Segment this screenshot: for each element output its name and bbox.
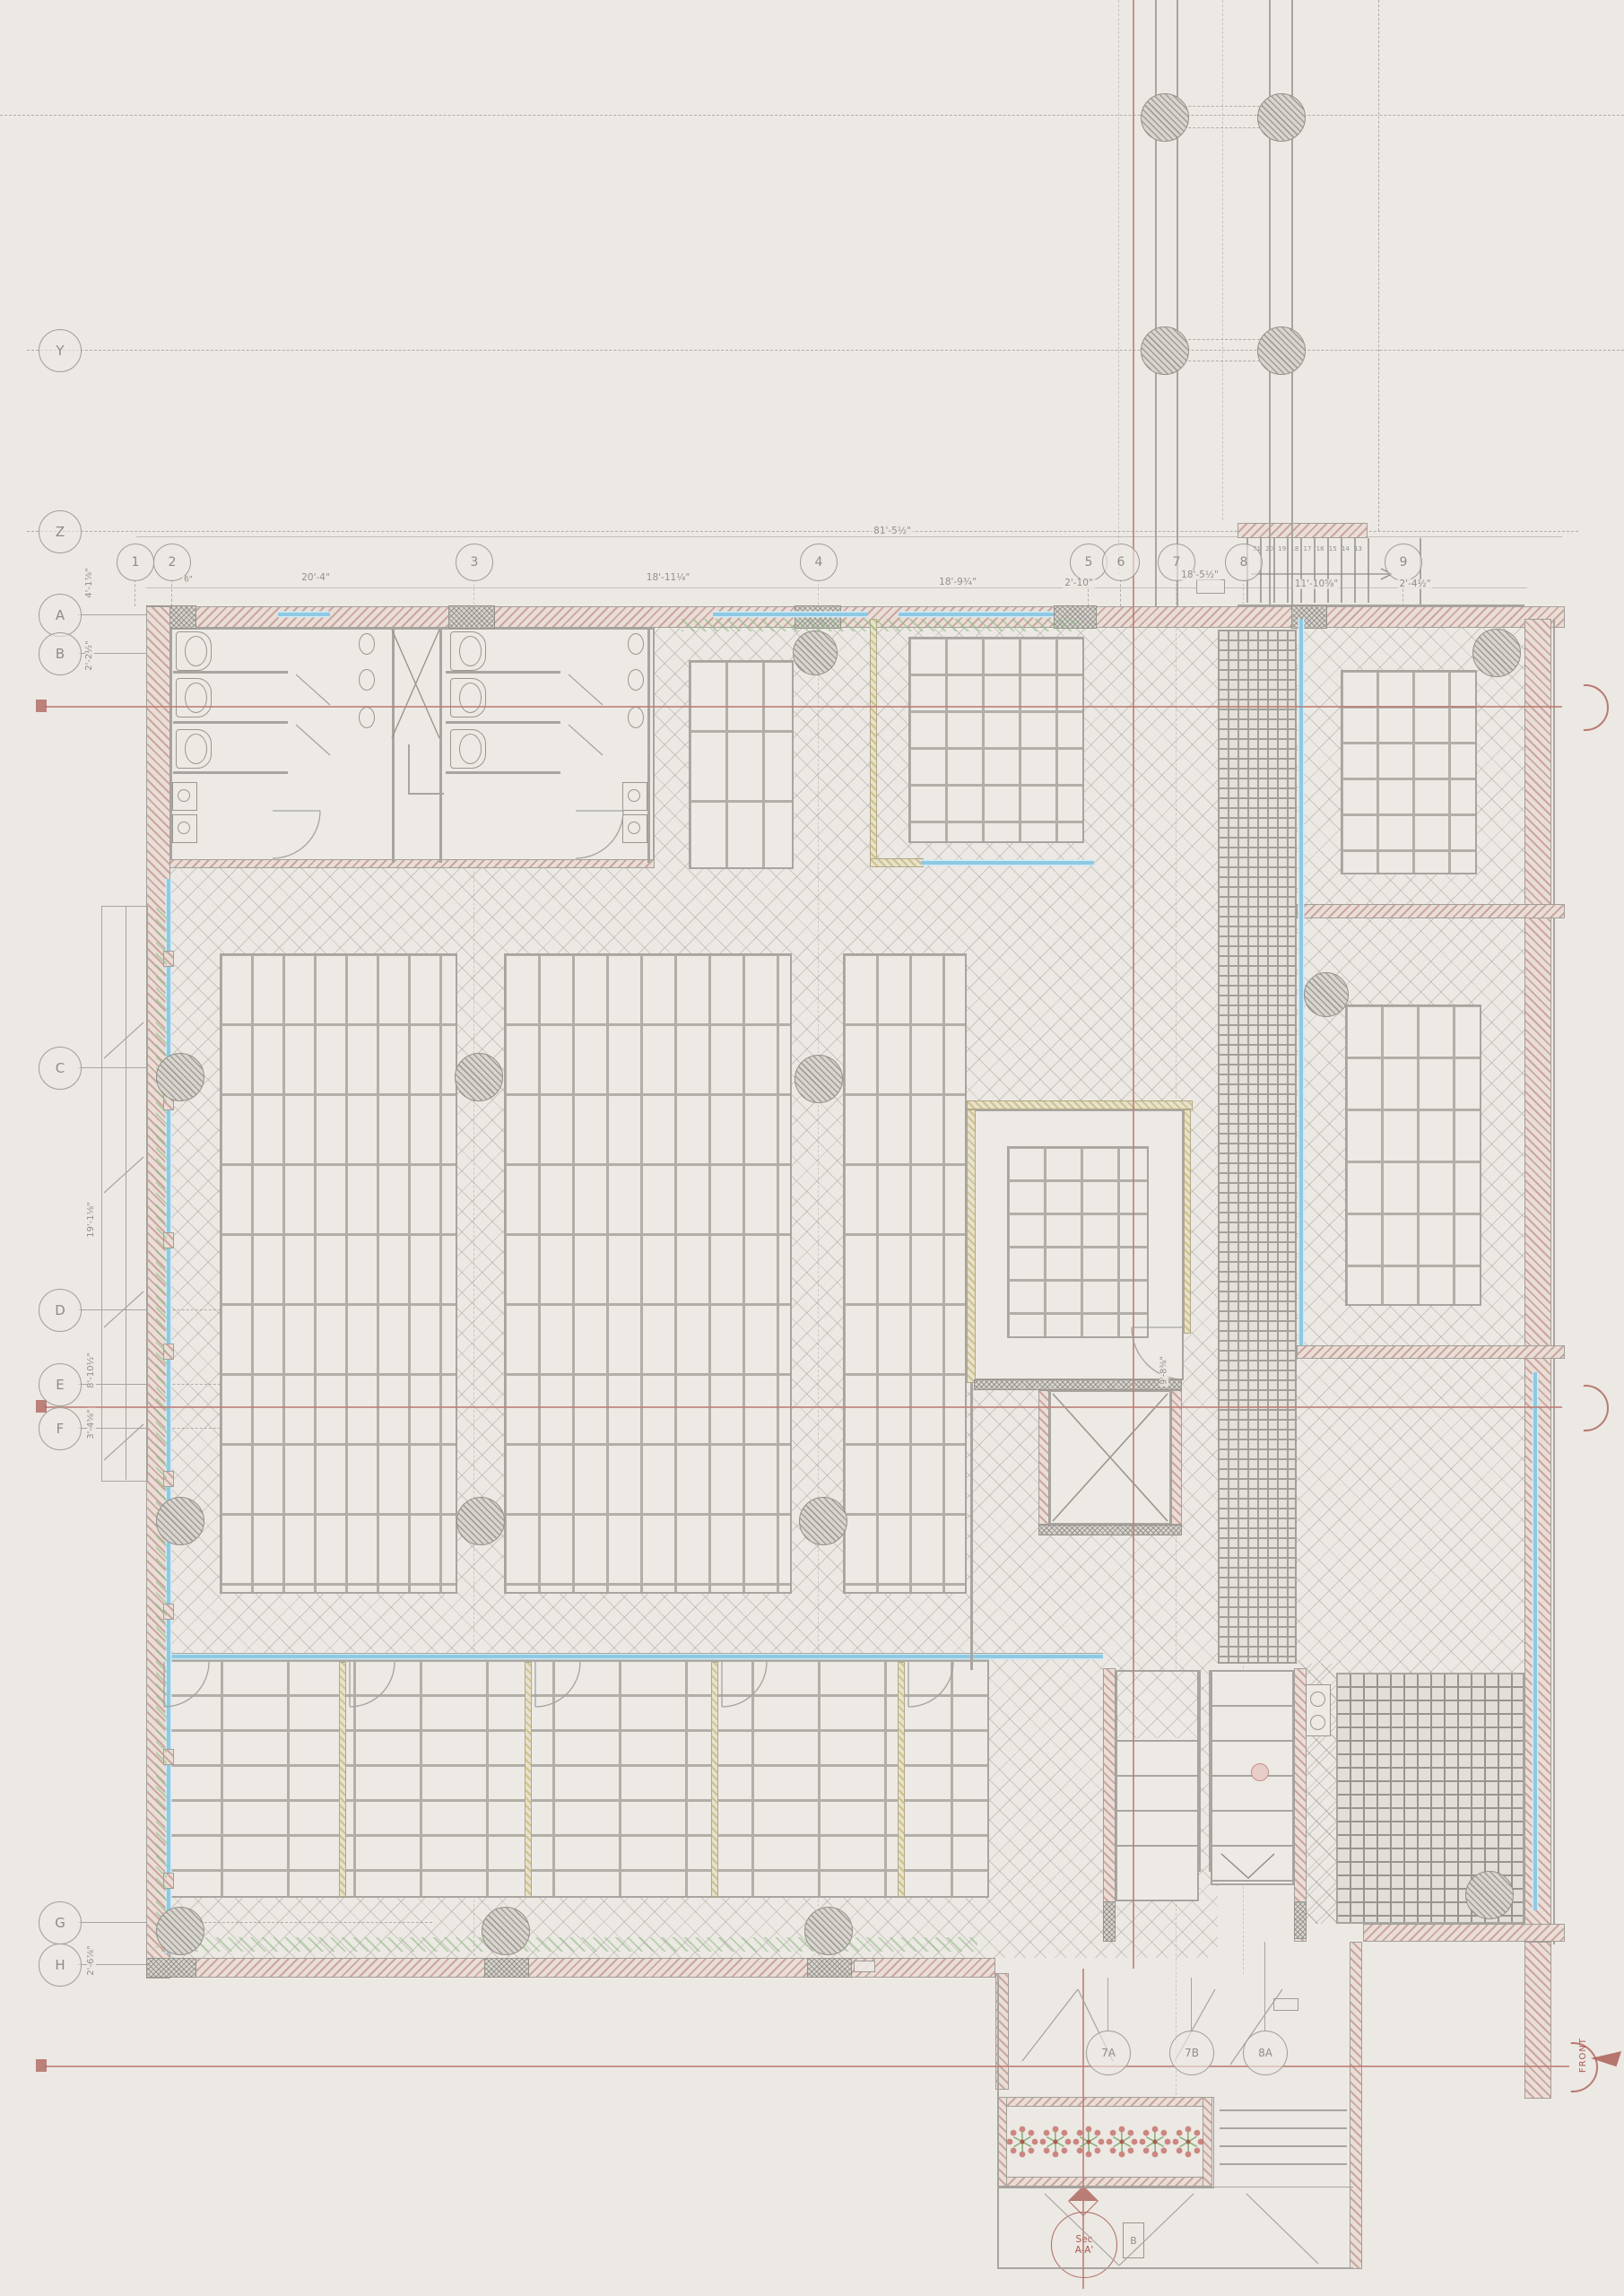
porch-step (1220, 2127, 1347, 2129)
column (482, 1907, 530, 1955)
dim-vertical: 4'-1⅞" (85, 566, 94, 599)
partition (339, 1662, 346, 1897)
grid-bubble-row-D: D (39, 1289, 82, 1332)
wall-pier (448, 605, 495, 629)
dim-vertical: 3'-4⅝" (87, 1407, 96, 1440)
stair-wall-pier (1294, 1901, 1307, 1939)
bathroom-wall (647, 628, 650, 863)
partition (711, 1662, 718, 1897)
bathroom-wall (439, 628, 442, 863)
grid-line-h (27, 350, 1624, 351)
stack-block-3 (843, 953, 967, 1594)
planter-border (997, 2097, 1007, 2187)
stair-tread (1117, 1810, 1199, 1812)
urinal (359, 707, 375, 728)
dim-horizontal: 18'-5½" (1179, 570, 1220, 580)
planter-border (1203, 2097, 1212, 2187)
stall-partition (446, 721, 560, 724)
grid-bubble-col-9: 9 (1385, 544, 1422, 581)
dim-horizontal: 11'-10⅝" (1293, 579, 1340, 589)
stall-partition (446, 671, 560, 674)
section-line (45, 706, 1562, 708)
room-divider (1297, 904, 1565, 918)
section-end-block (36, 1400, 47, 1413)
interior-glazing-right (1299, 619, 1303, 1345)
column (156, 1907, 204, 1955)
elevator-cab (1049, 1390, 1171, 1525)
exterior-wall-right-ext (1524, 1942, 1551, 2099)
exterior-feature-line (126, 906, 126, 1480)
skylight-grid-b (908, 637, 1084, 843)
planter-box (997, 2097, 1214, 2188)
grid-bubble-row-Y: Y (39, 329, 82, 372)
elevator-wall (1171, 1390, 1182, 1525)
porch-edge (997, 2187, 1353, 2187)
janitor-room (408, 793, 444, 795)
toilet (450, 729, 486, 769)
dim-overall: 81'-5½" (872, 526, 913, 536)
dim-vertical: 2'-6⅞" (87, 1944, 96, 1977)
dim-door: 9'-8⅜" (1159, 1354, 1168, 1387)
section-marker (1548, 2042, 1598, 2092)
stair-column (1251, 1763, 1269, 1781)
heater-coil (1310, 1715, 1325, 1730)
grid-bubble-col-8A: 8A (1243, 2031, 1288, 2075)
central-room-wall (967, 1109, 976, 1383)
column (1141, 326, 1189, 375)
stair-tread (1117, 1775, 1199, 1777)
central-room-wall (1184, 1109, 1191, 1334)
porch-edge (997, 2267, 1353, 2269)
grid-stem (135, 579, 135, 606)
interior-glazing (154, 1655, 1103, 1658)
wall-pier (807, 1958, 852, 1978)
wall-pier (1291, 605, 1327, 629)
wall-pier (146, 1958, 196, 1978)
stair-tread-v (1368, 538, 1369, 603)
dim-vertical: 19'-1⅛" (87, 1200, 96, 1239)
planter-border (997, 2177, 1212, 2187)
partition (525, 1662, 532, 1897)
column (804, 1907, 853, 1955)
urinal (628, 707, 644, 728)
toilet (450, 631, 486, 671)
stack-block-1 (220, 953, 457, 1594)
column (1472, 629, 1521, 677)
room-divider (1297, 1345, 1565, 1359)
partition-line (970, 1383, 973, 1670)
bathroom-wall (392, 628, 395, 863)
section-line (45, 2066, 1569, 2067)
label-tag (854, 1961, 875, 1972)
urinal (359, 633, 375, 655)
planting-strip-top (682, 619, 1076, 631)
stair-tread (1117, 1845, 1199, 1847)
corridor-wall (1155, 0, 1157, 606)
b-tag: B (1123, 2222, 1144, 2258)
section-end-block (36, 700, 47, 712)
corridor-beam (1179, 106, 1269, 107)
stair-tread (1212, 1845, 1292, 1847)
stall-partition (446, 771, 560, 774)
porch-step (1220, 2145, 1347, 2147)
sink (622, 782, 647, 811)
section-end-block (36, 2059, 47, 2072)
stair-tread (1212, 1705, 1292, 1707)
corridor-line (1378, 0, 1379, 531)
column (799, 1497, 847, 1545)
corridor-wall (1177, 0, 1178, 606)
column (156, 1053, 204, 1101)
window-left (167, 879, 170, 1953)
exterior-wall-bottom-right (1363, 1924, 1565, 1942)
section-line (45, 1406, 1562, 1408)
urinal (628, 633, 644, 655)
stair-tread (1212, 1740, 1292, 1742)
grid-bubble-col-7B: 7B (1169, 2031, 1214, 2075)
janitor-room (408, 744, 410, 794)
dim-horizontal: 2'-10" (1063, 578, 1095, 588)
column (1465, 1871, 1514, 1919)
column (156, 1497, 204, 1545)
column (793, 631, 838, 675)
dim-horizontal: 18'-9¾" (937, 578, 978, 587)
central-room-grid (1007, 1146, 1149, 1338)
planting-strip-bottom (161, 1937, 977, 1952)
grid-stem (1264, 1942, 1265, 2031)
grid-bubble-row-Z: Z (39, 510, 82, 553)
restroom-block (170, 628, 655, 863)
column (1257, 326, 1306, 375)
section-marker (1562, 1385, 1609, 1431)
grid-bubble-row-A: A (39, 594, 82, 637)
floor-plan-canvas: Sec A-A' B FRONT 21 20 19 18 17 16 15 14… (0, 0, 1624, 2296)
column (455, 1053, 503, 1101)
heater-coil (1310, 1692, 1325, 1707)
grid-bubble-row-E: E (39, 1363, 82, 1406)
column (1257, 93, 1306, 142)
grid-stem (1107, 1978, 1108, 2031)
section-line-v (1082, 1969, 1084, 2289)
section-marker (1562, 684, 1609, 731)
dim-horizontal: 20'-4" (300, 573, 332, 583)
grid-bubble-row-B: B (39, 632, 82, 675)
corridor-beam (1179, 339, 1269, 340)
corridor-grating (1218, 630, 1297, 1664)
window (899, 613, 1053, 616)
toilet (176, 729, 212, 769)
bathroom-wall (146, 859, 655, 868)
stair-tread (1212, 1670, 1292, 1672)
section-line-v (1133, 0, 1134, 1969)
label-tag (1273, 1998, 1298, 2011)
stair-landing (1116, 1670, 1199, 1738)
partition (870, 619, 877, 861)
corridor-beam (1179, 361, 1269, 361)
dim-horizontal: 2'-4½" (1397, 579, 1432, 589)
dim-horizontal: 6" (182, 577, 195, 585)
partition (898, 1662, 905, 1897)
porch-edge (997, 1973, 999, 2269)
corridor-beam (1179, 127, 1269, 128)
skylight-grid-midright (1345, 1004, 1481, 1306)
corridor-wall (1291, 0, 1293, 606)
partition-line (154, 1653, 1103, 1654)
elevator-wall (1038, 1525, 1182, 1535)
stall-partition (173, 771, 288, 774)
stair-wall-pier (1103, 1901, 1116, 1942)
dim-vertical: 2'-2½" (85, 639, 94, 672)
stall-partition (173, 721, 288, 724)
urinal (628, 669, 644, 691)
section-marker-line1: Sec (1076, 2234, 1093, 2245)
stair-top-wall (1238, 523, 1368, 538)
stack-block-2 (504, 953, 792, 1594)
grid-bubble-col-1: 1 (117, 544, 154, 581)
exterior-feature (101, 906, 148, 1482)
stair-stringer (1199, 1670, 1201, 1872)
wall-pier (484, 1958, 529, 1978)
label-tag (1196, 579, 1225, 594)
skylight-grid-a (689, 660, 794, 869)
porch-step (1220, 2109, 1347, 2111)
window (278, 613, 330, 616)
grid-line-h (0, 115, 1624, 116)
dim-vertical: 8'-10½" (87, 1351, 96, 1390)
wall-line (1553, 619, 1555, 1944)
interior-glazing (921, 861, 1094, 865)
corridor-dash (1222, 0, 1223, 520)
stair-wall-line (1420, 538, 1421, 606)
partition (870, 858, 924, 867)
porch-wall (1350, 1942, 1362, 2269)
porch-step (1220, 2163, 1347, 2165)
sink (172, 782, 197, 811)
grid-bubble-row-C: C (39, 1047, 82, 1090)
grid-bubble-col-8: 8 (1225, 544, 1263, 581)
sink (622, 814, 647, 843)
planter-border (997, 2097, 1212, 2107)
stair-tread (1117, 1740, 1199, 1742)
column (1304, 972, 1349, 1017)
section-marker-line2: A-A' (1075, 2245, 1094, 2256)
grid-bubble-col-3: 3 (456, 544, 493, 581)
corridor-wall (1269, 0, 1271, 606)
bottom-rooms-grid (154, 1659, 989, 1898)
grid-stem (1191, 1978, 1192, 2031)
stair-tread (1212, 1880, 1292, 1882)
toilet (450, 678, 486, 717)
window (713, 613, 867, 616)
window-right (1533, 1372, 1537, 1910)
sink (172, 814, 197, 843)
grid-stem (78, 614, 146, 615)
grid-bubble-col-7A: 7A (1086, 2031, 1131, 2075)
exterior-wall-right (1524, 619, 1551, 1944)
grid-bubble-row-H: H (39, 1944, 82, 1987)
grid-stem (1120, 579, 1121, 606)
lobby-wall (974, 1379, 1182, 1390)
grid-bubble-row-F: F (39, 1407, 82, 1450)
grid-stem (171, 579, 172, 606)
urinal (359, 669, 375, 691)
skylight-grid-topright (1341, 670, 1477, 874)
grid-stem (78, 1922, 146, 1923)
central-room-wall (967, 1100, 1193, 1109)
grid-bubble-row-G: G (39, 1901, 82, 1944)
grid-bubble-col-4: 4 (800, 544, 838, 581)
column (795, 1055, 843, 1103)
toilet (176, 631, 212, 671)
elevator-wall (1038, 1390, 1049, 1525)
toilet (176, 678, 212, 717)
dim-horizontal: 18'-11¼" (645, 573, 691, 583)
stair-stringer (1209, 1670, 1211, 1872)
stair-tread (1212, 1810, 1292, 1812)
column (456, 1497, 505, 1545)
grid-bubble-col-6: 6 (1102, 544, 1140, 581)
stall-partition (173, 671, 288, 674)
corridor-dash (1118, 0, 1119, 574)
column (1141, 93, 1189, 142)
